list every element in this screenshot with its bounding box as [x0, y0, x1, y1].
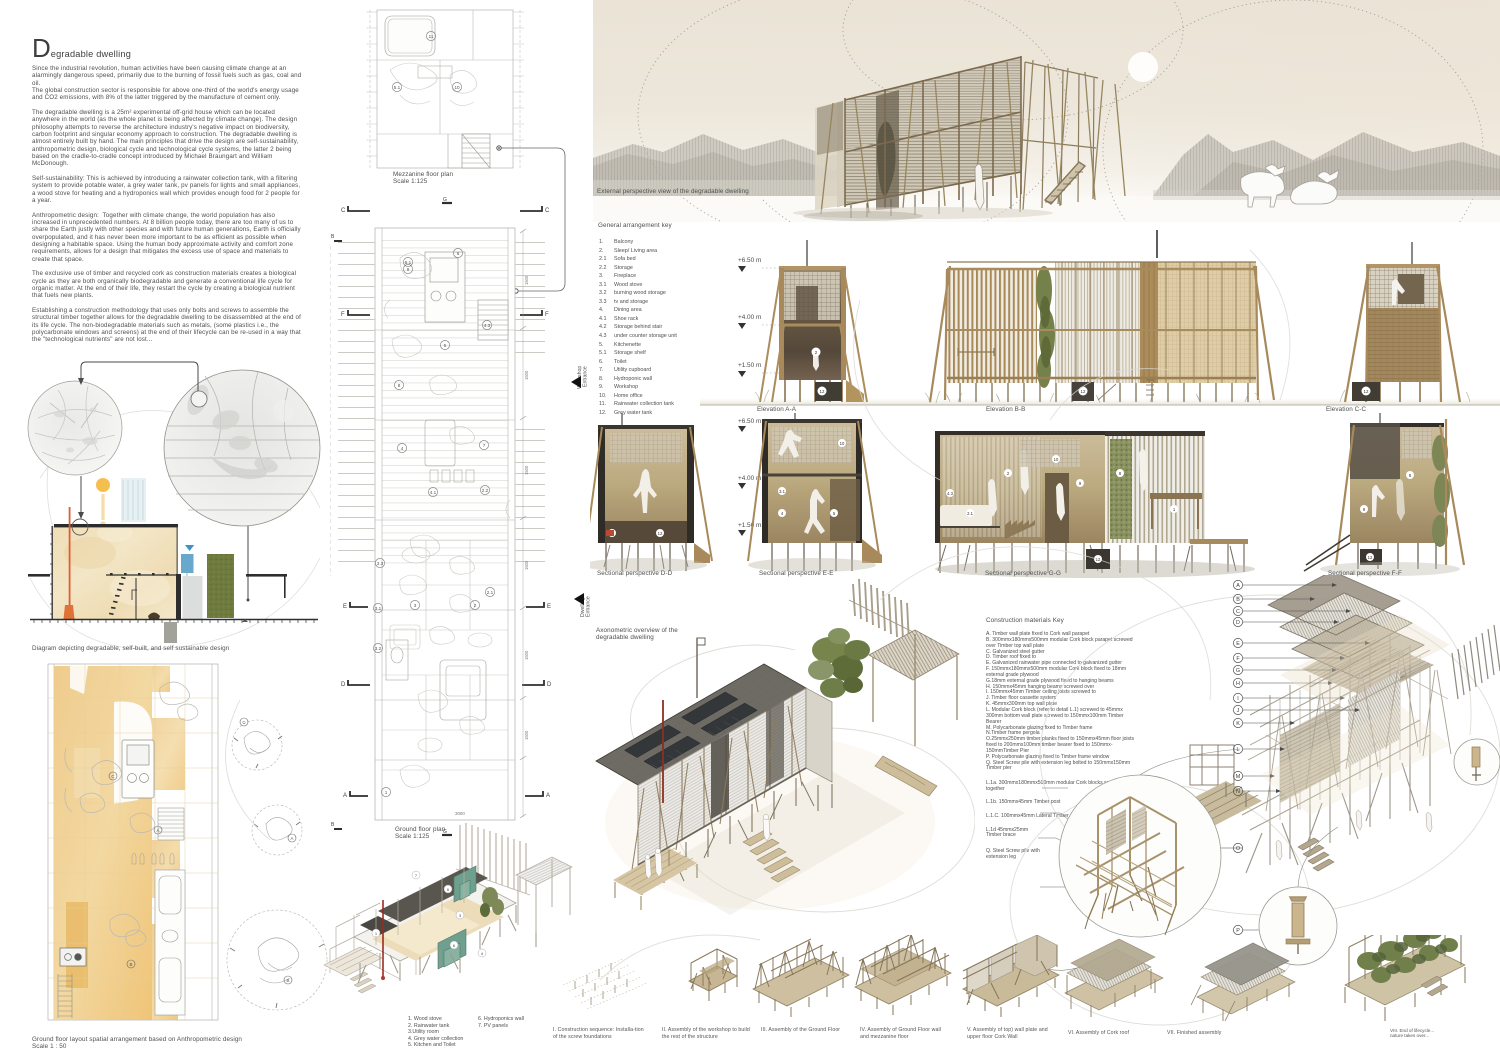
svg-text:3.2: 3.2 [375, 646, 382, 651]
svg-text:10: 10 [1054, 457, 1059, 462]
svg-text:I: I [1237, 696, 1239, 702]
svg-text:D: D [547, 682, 552, 688]
svg-text:G: G [1236, 668, 1240, 674]
svg-text:1500: 1500 [524, 560, 529, 570]
svg-text:B: B [130, 962, 133, 967]
svg-text:6: 6 [457, 251, 460, 256]
svg-text:1500: 1500 [524, 275, 529, 285]
svg-text:1500: 1500 [524, 730, 529, 740]
svg-text:12: 12 [820, 389, 825, 394]
svg-text:2.2: 2.2 [482, 488, 489, 493]
svg-text:+6.50 m: +6.50 m [738, 418, 761, 425]
svg-text:K: K [1236, 721, 1240, 727]
svg-text:C: C [341, 208, 346, 214]
svg-text:3: 3 [414, 603, 417, 608]
svg-text:N: N [1236, 789, 1240, 795]
svg-text:5: 5 [444, 343, 447, 348]
svg-text:3.3: 3.3 [377, 561, 384, 566]
svg-text:B: B [331, 234, 335, 240]
svg-text:D: D [1236, 620, 1240, 626]
svg-text:7: 7 [483, 443, 486, 448]
svg-text:J: J [1237, 708, 1240, 714]
svg-text:2.1: 2.1 [487, 590, 494, 595]
svg-text:L: L [1237, 747, 1240, 753]
svg-text:E: E [1236, 641, 1240, 647]
svg-text:D: D [341, 682, 346, 688]
svg-text:A: A [291, 836, 294, 841]
svg-text:E: E [547, 604, 551, 610]
svg-text:B: B [1236, 597, 1240, 603]
svg-text:3.1: 3.1 [779, 489, 785, 494]
svg-text:O: O [1236, 846, 1240, 852]
svg-text:+4.00 m: +4.00 m [738, 314, 761, 321]
svg-text:2: 2 [474, 603, 477, 608]
svg-text:+6.50 m: +6.50 m [738, 257, 761, 264]
svg-text:M: M [1236, 774, 1241, 780]
svg-text:12: 12 [1096, 557, 1101, 562]
svg-text:8: 8 [398, 383, 401, 388]
svg-text:4.1: 4.1 [430, 490, 437, 495]
svg-text:F: F [1236, 656, 1240, 662]
svg-text:A: A [1236, 583, 1240, 589]
svg-text:H: H [1236, 681, 1240, 687]
svg-text:12: 12 [1368, 555, 1373, 560]
svg-text:1500: 1500 [524, 465, 529, 475]
svg-text:C: C [545, 208, 550, 214]
svg-text:12: 12 [1081, 389, 1086, 394]
svg-text:2.1: 2.1 [967, 511, 973, 516]
svg-text:+1.50 m: +1.50 m [738, 522, 761, 529]
svg-text:1500: 1500 [524, 370, 529, 380]
svg-text:9: 9 [407, 267, 410, 272]
svg-text:F: F [545, 312, 549, 318]
svg-text:4: 4 [401, 446, 404, 451]
svg-text:E: E [343, 604, 347, 610]
svg-text:11: 11 [429, 34, 434, 39]
svg-text:12: 12 [658, 531, 663, 536]
svg-text:4.3: 4.3 [484, 323, 491, 328]
svg-text:B: B [287, 978, 290, 983]
svg-text:10: 10 [454, 85, 460, 90]
svg-text:10: 10 [840, 441, 845, 446]
svg-text:P: P [1236, 928, 1240, 934]
svg-text:5.1: 5.1 [394, 85, 401, 90]
svg-text:C: C [242, 720, 245, 725]
svg-text:A: A [343, 793, 347, 799]
svg-text:1500: 1500 [524, 650, 529, 660]
svg-text:A: A [546, 793, 550, 799]
svg-text:C: C [1236, 609, 1240, 615]
svg-text:+1.50 m: +1.50 m [738, 362, 761, 369]
svg-text:3.1: 3.1 [375, 606, 382, 611]
svg-text:1: 1 [385, 790, 388, 795]
svg-text:4.3: 4.3 [947, 491, 953, 496]
svg-text:A: A [157, 828, 160, 833]
svg-text:12: 12 [1364, 389, 1369, 394]
svg-text:C: C [111, 774, 114, 779]
